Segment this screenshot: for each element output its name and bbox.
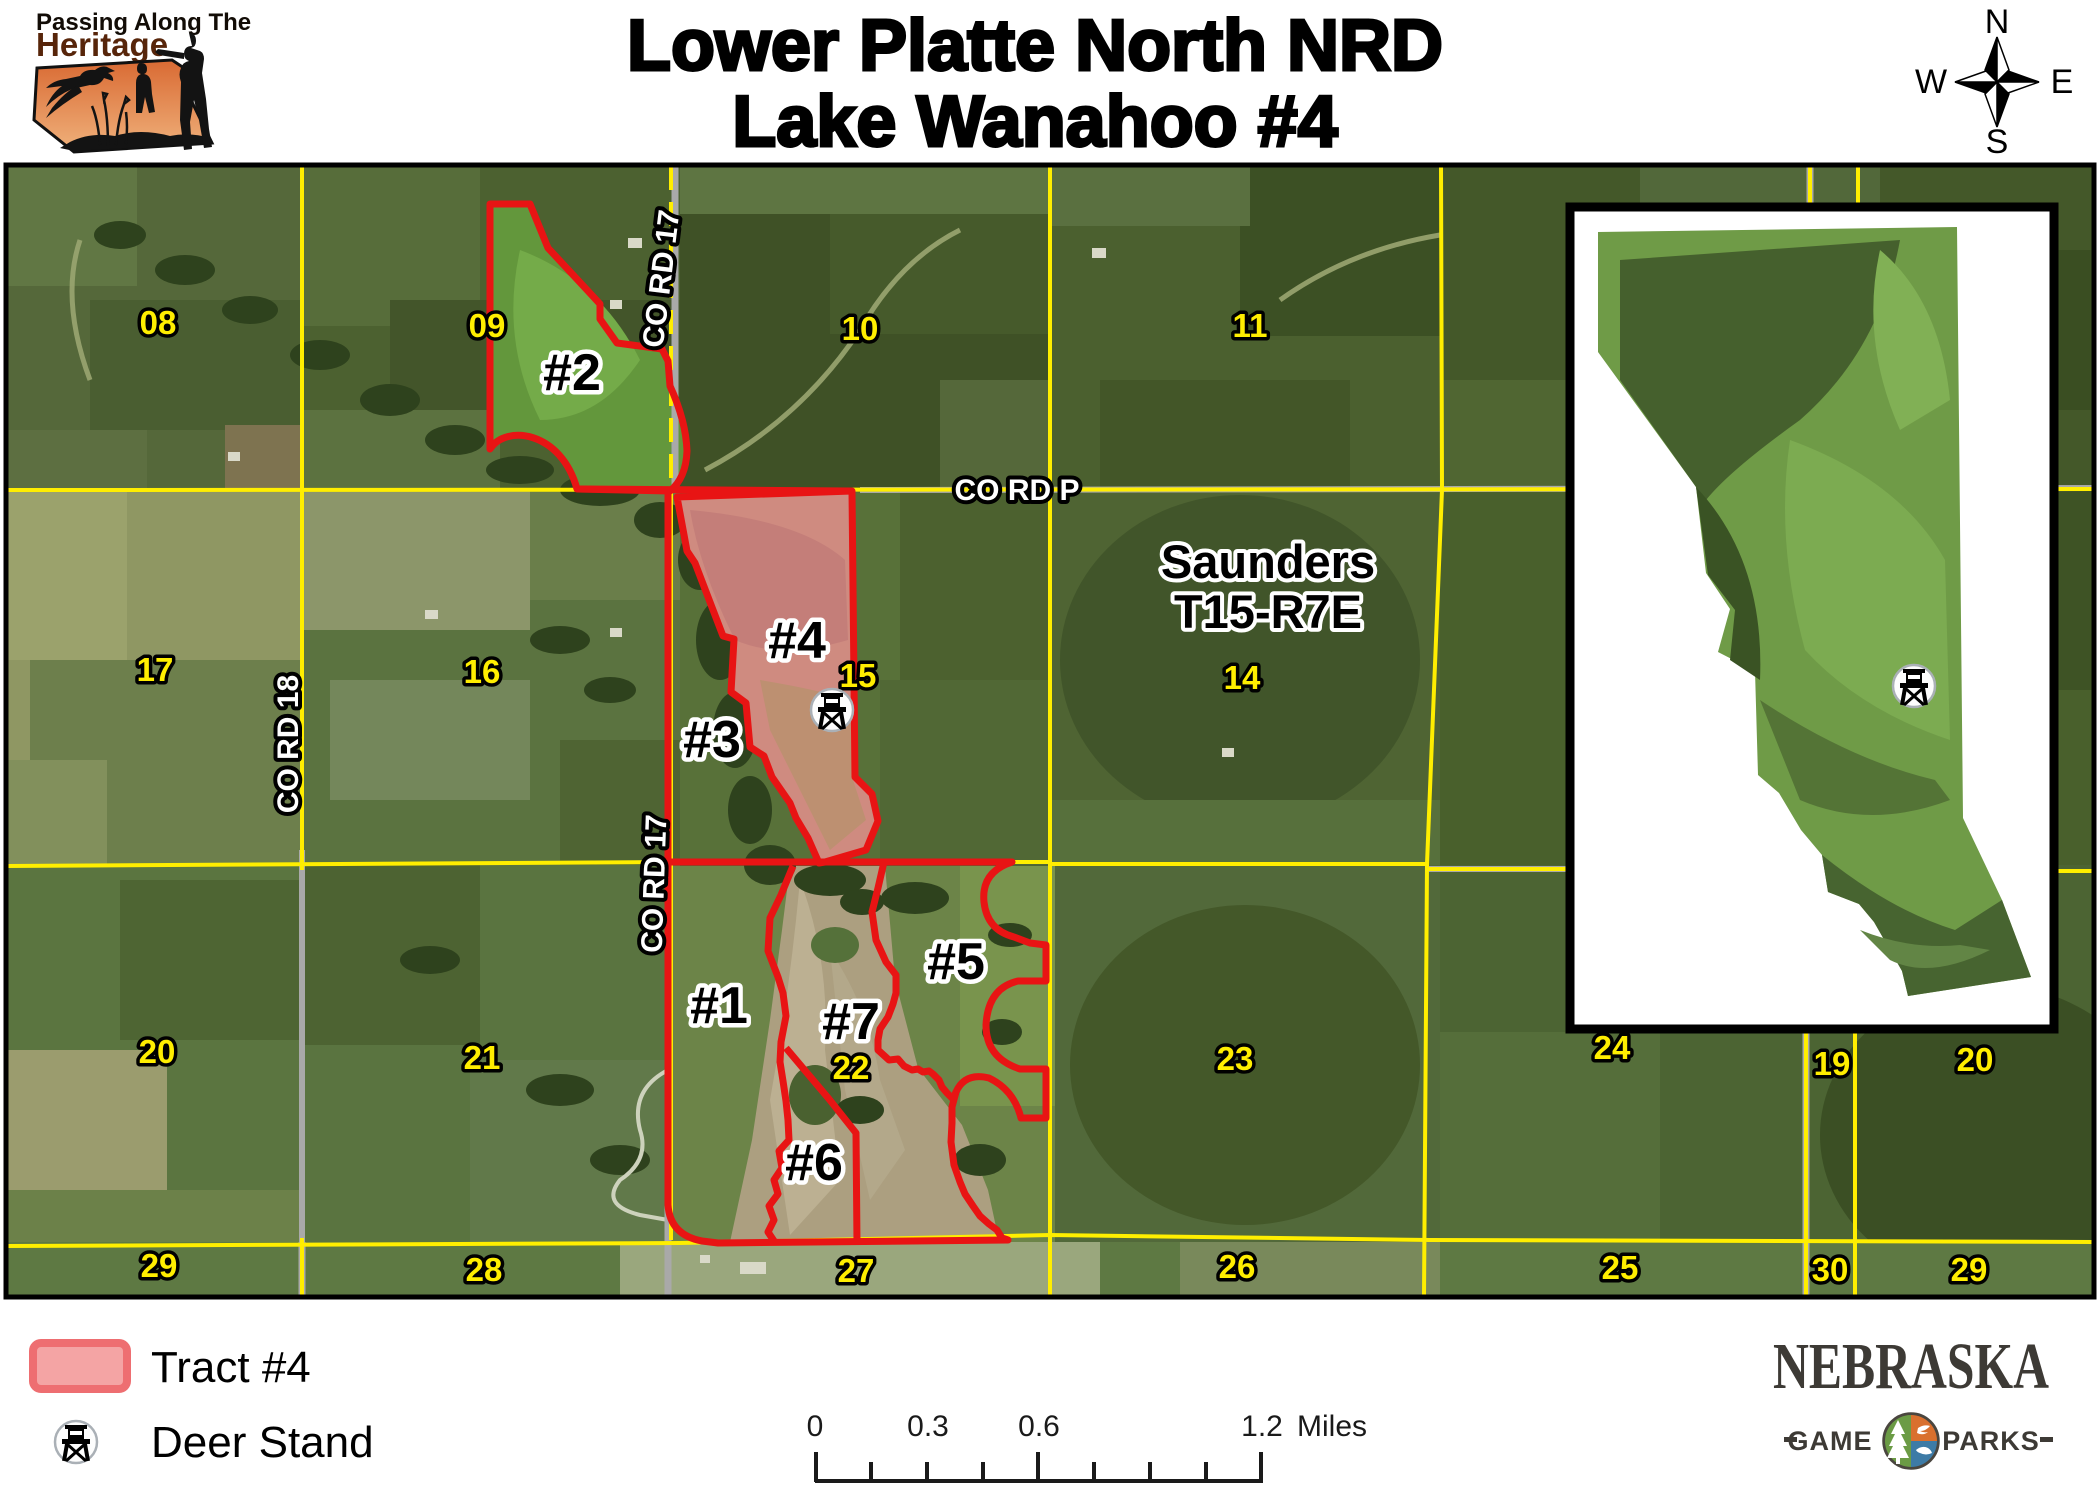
svg-text:26: 26 <box>1219 1248 1256 1285</box>
svg-text:0.6: 0.6 <box>1018 1410 1060 1443</box>
svg-text:S: S <box>1986 123 2009 161</box>
svg-text:W: W <box>1915 63 1947 101</box>
svg-text:15: 15 <box>840 657 877 694</box>
svg-text:29: 29 <box>1951 1251 1988 1288</box>
svg-text:Miles: Miles <box>1297 1410 1367 1443</box>
svg-text:20: 20 <box>139 1033 176 1070</box>
svg-text:T15-R7E: T15-R7E <box>1174 585 1362 638</box>
svg-text:CO RD P: CO RD P <box>954 474 1079 507</box>
svg-text:22: 22 <box>833 1049 870 1086</box>
svg-text:GAME: GAME <box>1788 1426 1873 1456</box>
svg-text:14: 14 <box>1224 659 1261 696</box>
svg-text:09: 09 <box>469 307 506 344</box>
svg-text:10: 10 <box>842 310 879 347</box>
svg-text:24: 24 <box>1594 1029 1631 1066</box>
svg-text:CO RD 17: CO RD 17 <box>636 814 674 953</box>
svg-text:#7: #7 <box>822 993 880 1051</box>
svg-text:PARKS: PARKS <box>1942 1426 2040 1456</box>
svg-text:Tract #4: Tract #4 <box>151 1343 311 1392</box>
svg-text:27: 27 <box>838 1252 875 1289</box>
svg-text:#4: #4 <box>768 612 826 670</box>
svg-text:29: 29 <box>141 1247 178 1284</box>
svg-text:E: E <box>2051 63 2074 101</box>
svg-text:16: 16 <box>464 653 501 690</box>
svg-text:#1: #1 <box>690 977 748 1035</box>
svg-text:Lower Platte North NRD: Lower Platte North NRD <box>627 6 1443 86</box>
svg-text:17: 17 <box>137 651 174 688</box>
svg-text:Heritage: Heritage <box>36 26 168 63</box>
svg-text:NEBRASKA: NEBRASKA <box>1773 1330 2049 1403</box>
svg-text:#3: #3 <box>683 711 741 769</box>
svg-text:Deer Stand: Deer Stand <box>151 1418 374 1467</box>
svg-text:11: 11 <box>1233 307 1268 344</box>
svg-text:08: 08 <box>140 304 177 341</box>
svg-text:28: 28 <box>466 1251 503 1288</box>
svg-text:CO RD 18: CO RD 18 <box>272 675 305 813</box>
svg-text:Lake Wanahoo #4: Lake Wanahoo #4 <box>732 82 1338 162</box>
svg-text:#2: #2 <box>543 344 601 402</box>
svg-text:#6: #6 <box>785 1134 843 1192</box>
svg-text:1.2: 1.2 <box>1241 1410 1283 1443</box>
svg-text:19: 19 <box>1814 1045 1851 1082</box>
svg-text:0: 0 <box>807 1410 824 1443</box>
svg-text:N: N <box>1985 3 2010 41</box>
svg-text:Saunders: Saunders <box>1161 535 1375 588</box>
svg-text:30: 30 <box>1812 1251 1849 1288</box>
svg-text:25: 25 <box>1602 1249 1639 1286</box>
svg-text:#5: #5 <box>927 933 985 991</box>
svg-text:20: 20 <box>1957 1041 1994 1078</box>
svg-text:0.3: 0.3 <box>907 1410 949 1443</box>
svg-text:21: 21 <box>464 1039 501 1076</box>
svg-text:23: 23 <box>1217 1040 1254 1077</box>
